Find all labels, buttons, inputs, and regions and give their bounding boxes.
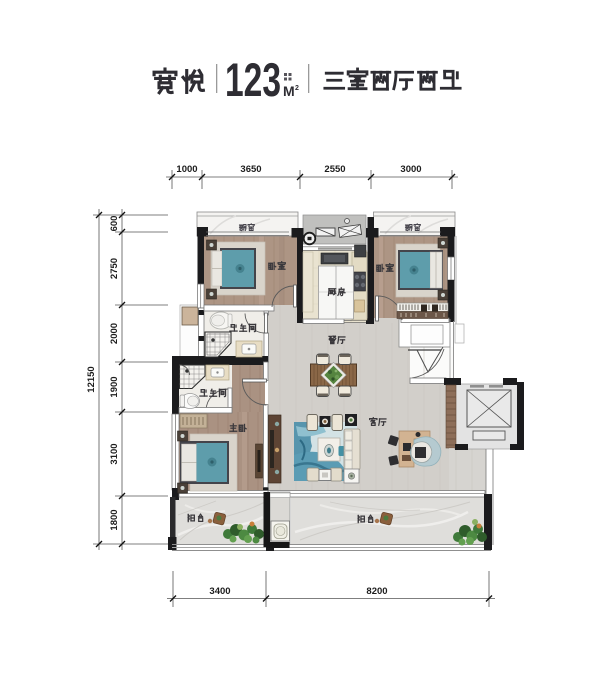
svg-text:2: 2 [295, 85, 299, 92]
svg-text:1800: 1800 [109, 509, 120, 530]
svg-text:3650: 3650 [240, 164, 261, 175]
svg-text:3000: 3000 [400, 164, 421, 175]
svg-text:1900: 1900 [109, 376, 120, 397]
svg-text:2000: 2000 [109, 323, 120, 344]
svg-text:12150: 12150 [86, 366, 97, 392]
svg-text:123: 123 [225, 53, 281, 106]
svg-text:2750: 2750 [109, 258, 120, 279]
svg-text:3400: 3400 [209, 586, 230, 597]
svg-text:3100: 3100 [109, 443, 120, 464]
svg-text:1000: 1000 [176, 164, 197, 175]
svg-text:600: 600 [109, 216, 120, 232]
svg-text:8200: 8200 [366, 586, 387, 597]
svg-text:M: M [283, 83, 295, 99]
svg-text:2550: 2550 [324, 164, 345, 175]
